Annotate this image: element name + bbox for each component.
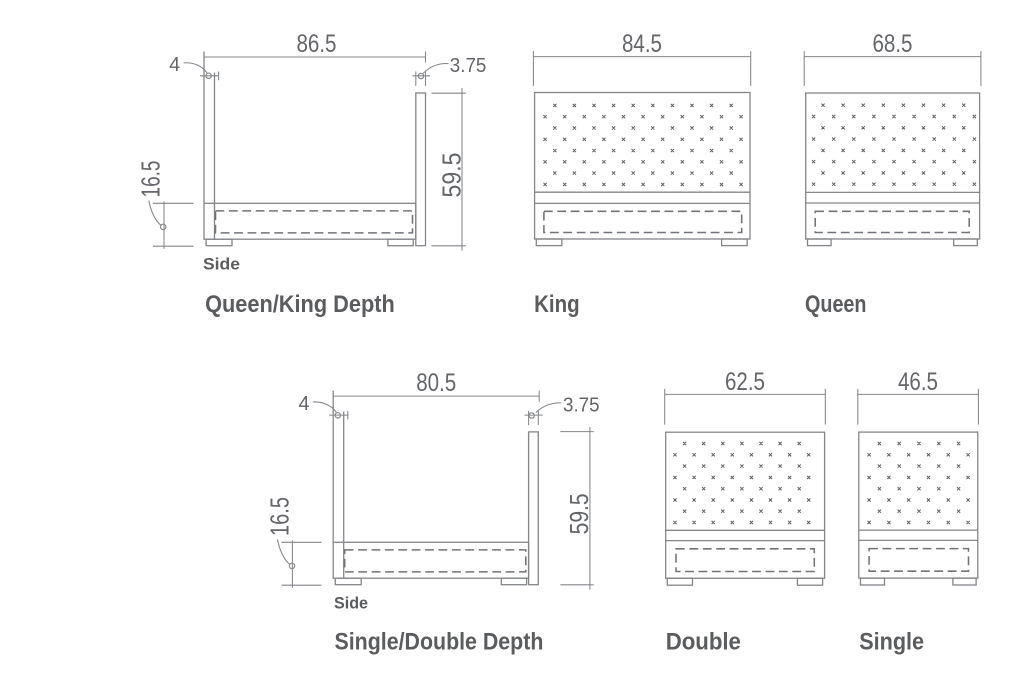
- svg-text:3.75: 3.75: [563, 394, 600, 416]
- svg-text:Queen: Queen: [805, 291, 867, 318]
- svg-text:16.5: 16.5: [265, 497, 295, 536]
- svg-text:86.5: 86.5: [297, 30, 337, 58]
- svg-text:16.5: 16.5: [136, 161, 166, 198]
- svg-text:Double: Double: [666, 629, 741, 656]
- svg-text:59.5: 59.5: [437, 153, 467, 198]
- svg-text:84.5: 84.5: [622, 30, 662, 58]
- svg-text:68.5: 68.5: [873, 30, 913, 58]
- svg-text:46.5: 46.5: [898, 368, 938, 396]
- svg-text:59.5: 59.5: [564, 493, 594, 534]
- svg-text:Queen/King Depth: Queen/King Depth: [205, 291, 395, 318]
- svg-text:62.5: 62.5: [725, 368, 765, 396]
- svg-text:Single: Single: [859, 629, 924, 656]
- svg-text:Side: Side: [203, 255, 240, 274]
- svg-text:3.75: 3.75: [450, 55, 487, 77]
- svg-text:King: King: [534, 291, 580, 318]
- svg-text:Single/Double Depth: Single/Double Depth: [335, 628, 544, 655]
- svg-text:4: 4: [169, 54, 180, 76]
- svg-text:4: 4: [299, 393, 310, 415]
- svg-text:Side: Side: [334, 594, 368, 613]
- svg-text:80.5: 80.5: [416, 369, 456, 397]
